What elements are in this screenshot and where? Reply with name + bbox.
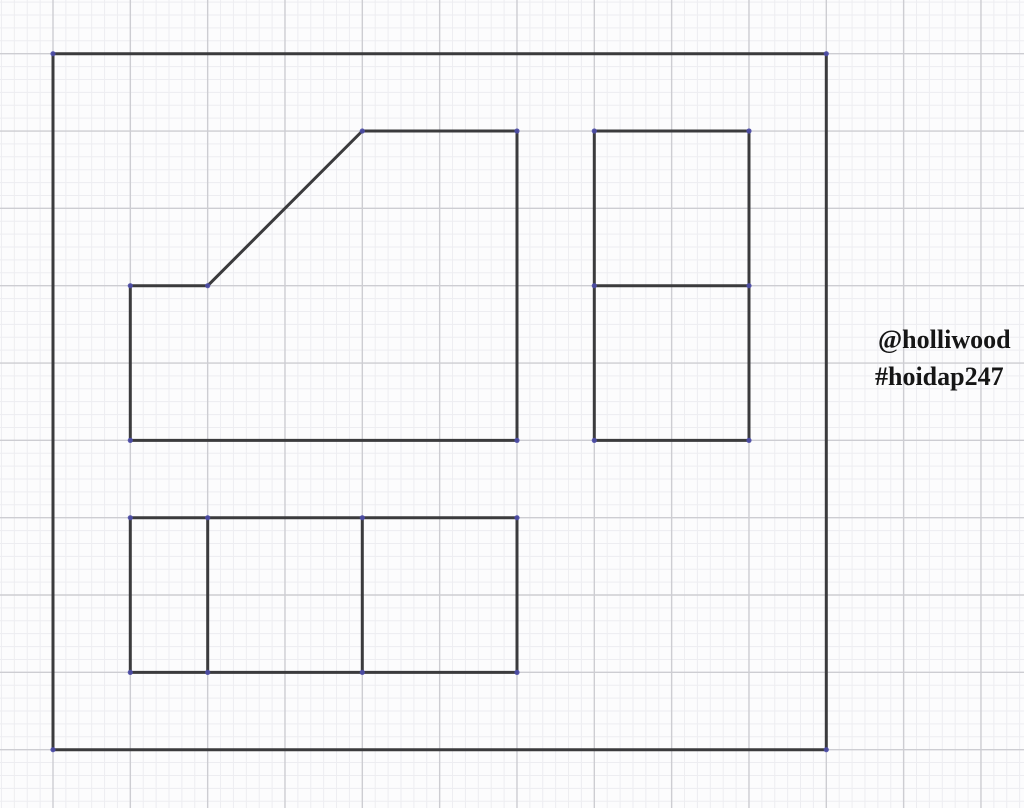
vertex-point[interactable] xyxy=(746,128,751,133)
vertex-point[interactable] xyxy=(514,515,519,520)
drawing-canvas: @holliwood #hoidap247 xyxy=(0,0,1024,808)
vertex-point[interactable] xyxy=(746,438,751,443)
vertex-point[interactable] xyxy=(360,670,365,675)
vertex-point[interactable] xyxy=(514,128,519,133)
vertex-point[interactable] xyxy=(592,128,597,133)
vertex-point[interactable] xyxy=(205,283,210,288)
vertex-point[interactable] xyxy=(514,438,519,443)
vertex-point[interactable] xyxy=(128,670,133,675)
vertex-point[interactable] xyxy=(592,438,597,443)
vertex-point[interactable] xyxy=(360,515,365,520)
vertex-point[interactable] xyxy=(514,670,519,675)
vertex-point[interactable] xyxy=(592,283,597,288)
drawing-svg xyxy=(0,0,1024,808)
vertex-point[interactable] xyxy=(50,51,55,56)
vertex-point[interactable] xyxy=(205,515,210,520)
grid-layer xyxy=(0,0,1024,808)
vertex-point[interactable] xyxy=(50,747,55,752)
watermark-hashtag: #hoidap247 xyxy=(875,364,1004,390)
watermark-handle: @holliwood xyxy=(878,327,1011,353)
vertex-point[interactable] xyxy=(128,515,133,520)
vertex-point[interactable] xyxy=(746,283,751,288)
vertex-point[interactable] xyxy=(360,128,365,133)
vertex-point[interactable] xyxy=(128,438,133,443)
vertex-point[interactable] xyxy=(205,670,210,675)
vertex-point[interactable] xyxy=(824,51,829,56)
vertex-point[interactable] xyxy=(824,747,829,752)
vertex-point[interactable] xyxy=(128,283,133,288)
